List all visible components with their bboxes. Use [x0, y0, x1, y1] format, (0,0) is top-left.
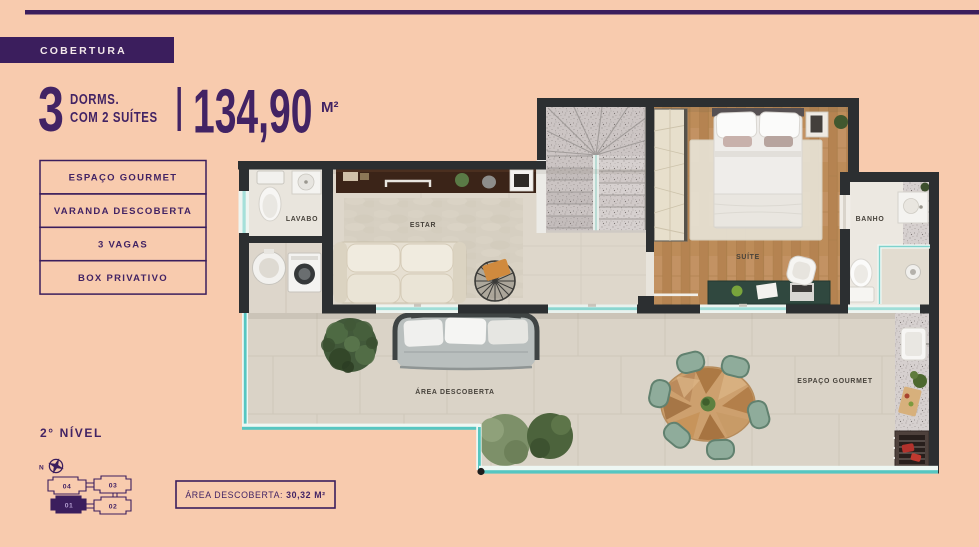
svg-text:BANHO: BANHO	[856, 216, 885, 223]
svg-text:COM 2 SUÍTES: COM 2 SUÍTES	[70, 108, 158, 125]
svg-text:02: 02	[109, 504, 118, 511]
svg-text:SUÍTE: SUÍTE	[736, 252, 760, 261]
svg-text:LAVABO: LAVABO	[286, 216, 318, 223]
svg-text:N: N	[39, 465, 44, 472]
svg-text:DORMS.: DORMS.	[70, 90, 119, 107]
svg-text:COBERTURA: COBERTURA	[40, 45, 127, 57]
svg-text:2° NÍVEL: 2° NÍVEL	[40, 425, 103, 440]
svg-text:BOX PRIVATIVO: BOX PRIVATIVO	[78, 273, 168, 284]
svg-text:3: 3	[38, 74, 64, 144]
svg-text:03: 03	[109, 483, 118, 490]
svg-text:VARANDA DESCOBERTA: VARANDA DESCOBERTA	[54, 206, 192, 217]
svg-text:ESPAÇO GOURMET: ESPAÇO GOURMET	[69, 173, 178, 184]
svg-text:01: 01	[65, 503, 74, 510]
svg-text:134,90: 134,90	[193, 76, 312, 145]
svg-text:3 VAGAS: 3 VAGAS	[98, 239, 148, 250]
svg-text:M²: M²	[321, 99, 339, 116]
svg-text:ESPAÇO GOURMET: ESPAÇO GOURMET	[797, 378, 873, 385]
svg-text:ÁREA DESCOBERTA: ÁREA DESCOBERTA	[415, 387, 494, 396]
svg-text:ÁREA DESCOBERTA: 30,32 M²: ÁREA DESCOBERTA: 30,32 M²	[185, 490, 325, 500]
svg-text:04: 04	[63, 484, 72, 491]
svg-text:ESTAR: ESTAR	[410, 222, 436, 229]
